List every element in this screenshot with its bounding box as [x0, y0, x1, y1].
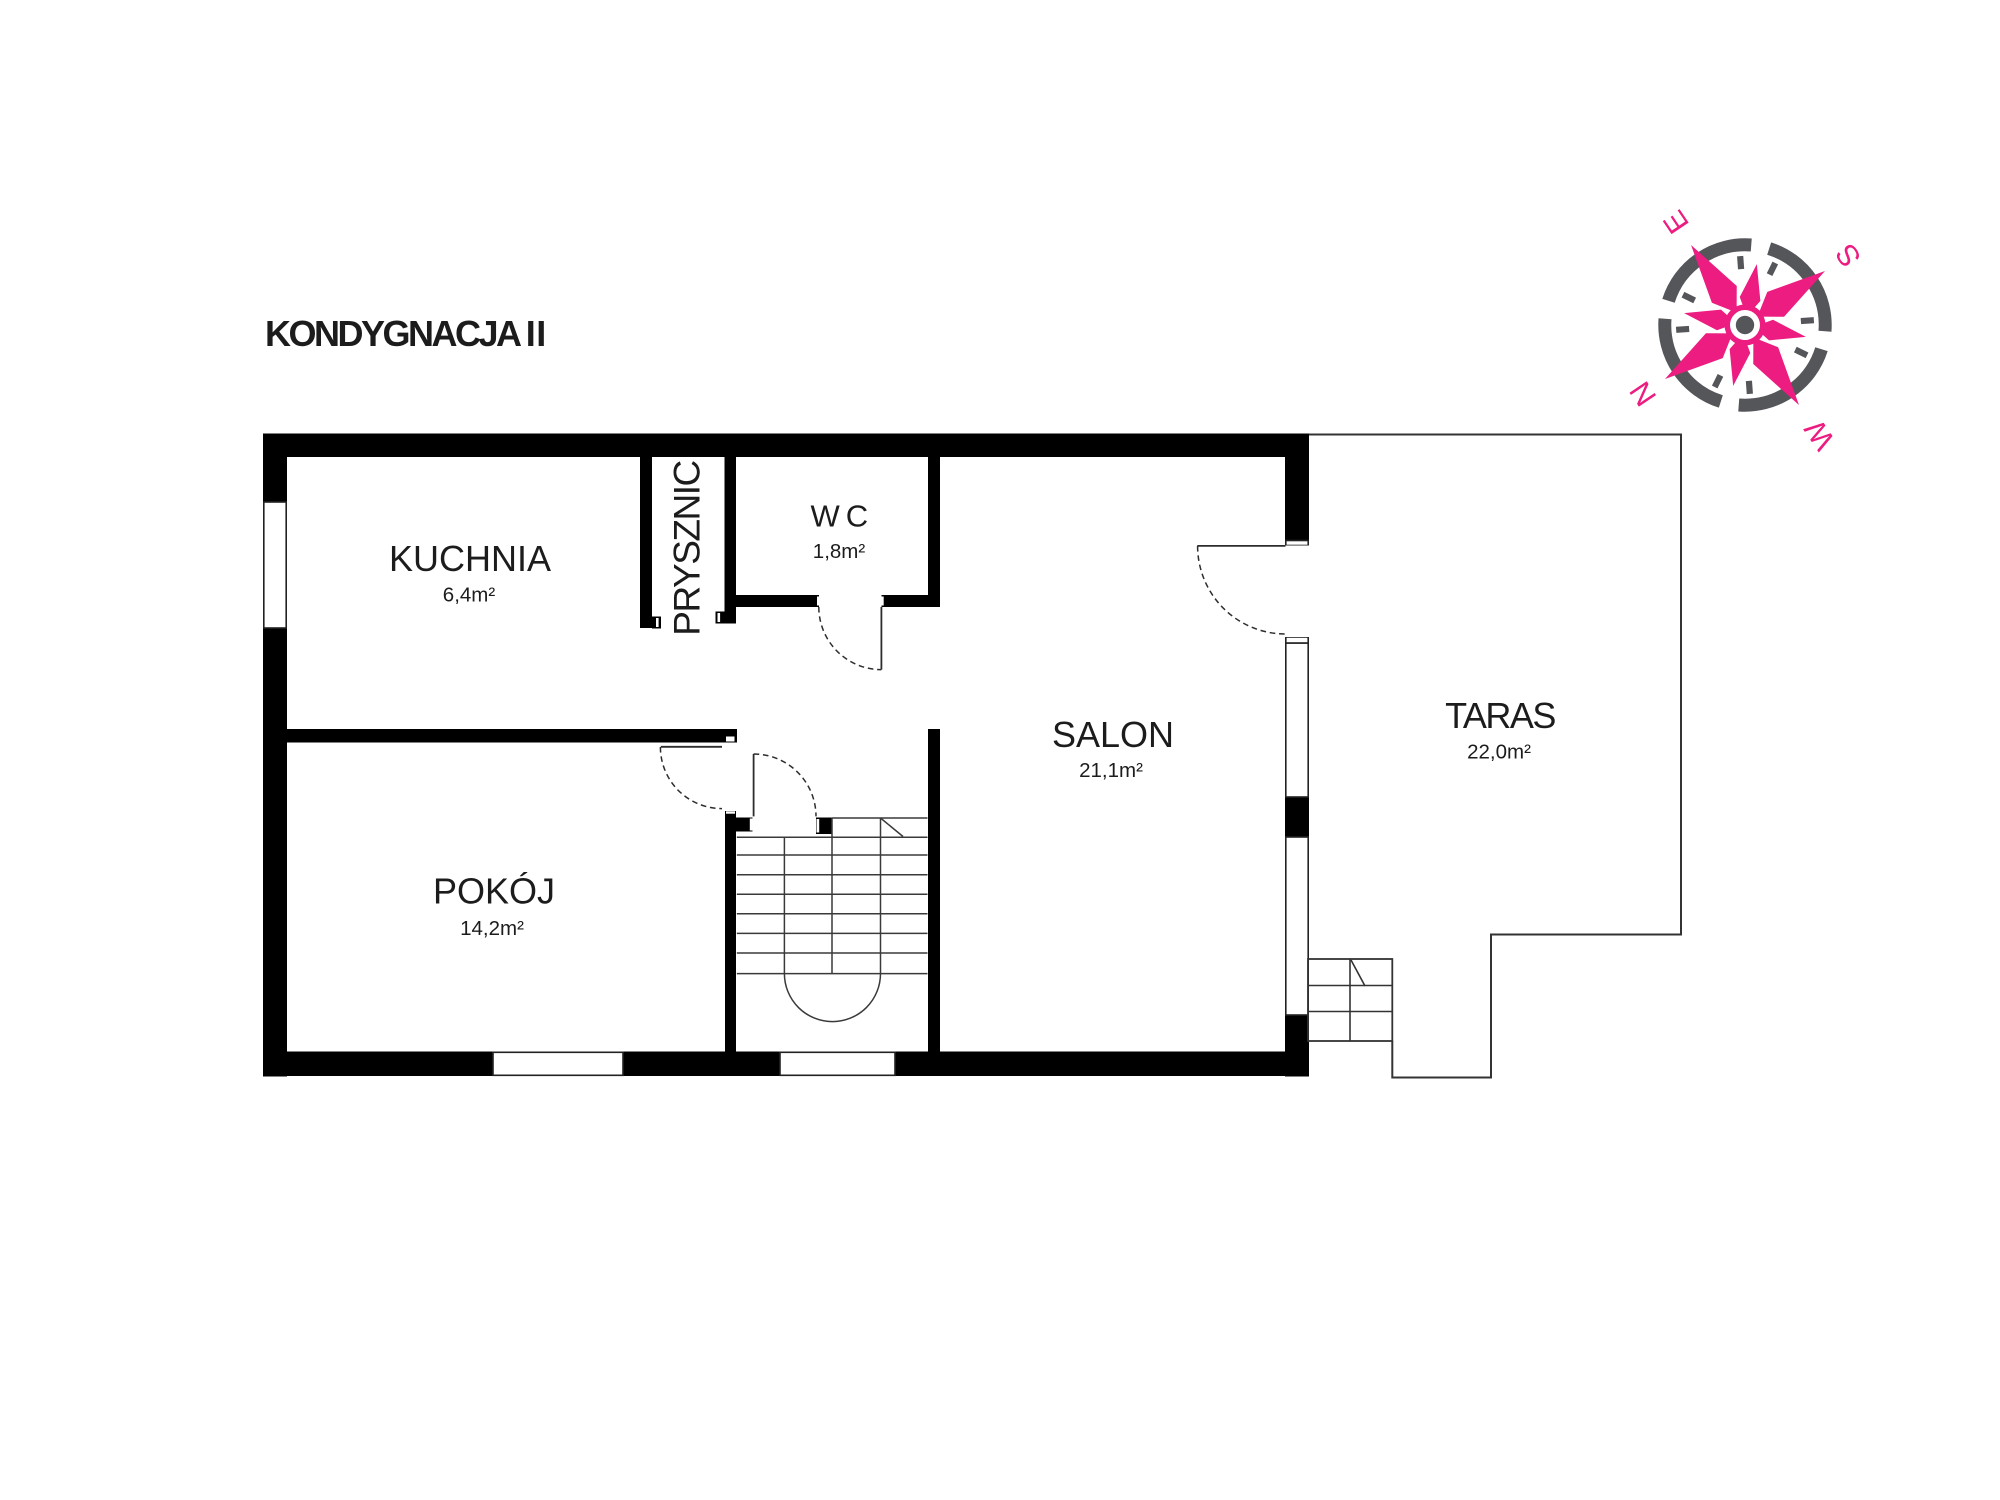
svg-text:1,8m²: 1,8m² [813, 540, 866, 563]
svg-text:6,4m²: 6,4m² [443, 584, 496, 607]
svg-text:WC: WC [810, 499, 874, 534]
svg-text:N: N [1624, 375, 1663, 411]
svg-text:21,1m²: 21,1m² [1079, 759, 1143, 782]
svg-text:22,0m²: 22,0m² [1467, 741, 1531, 764]
svg-text:E: E [1657, 204, 1696, 239]
svg-text:PRYSZNIC: PRYSZNIC [667, 461, 708, 636]
svg-text:KUCHNIA: KUCHNIA [389, 538, 551, 579]
svg-text:S: S [1829, 238, 1868, 273]
svg-text:KONDYGNACJA II: KONDYGNACJA II [265, 313, 547, 354]
svg-text:POKÓJ: POKÓJ [433, 871, 555, 912]
svg-text:SALON: SALON [1052, 714, 1174, 755]
svg-text:TARAS: TARAS [1445, 695, 1555, 736]
svg-text:14,2m²: 14,2m² [460, 917, 524, 940]
svg-text:W: W [1798, 413, 1842, 455]
